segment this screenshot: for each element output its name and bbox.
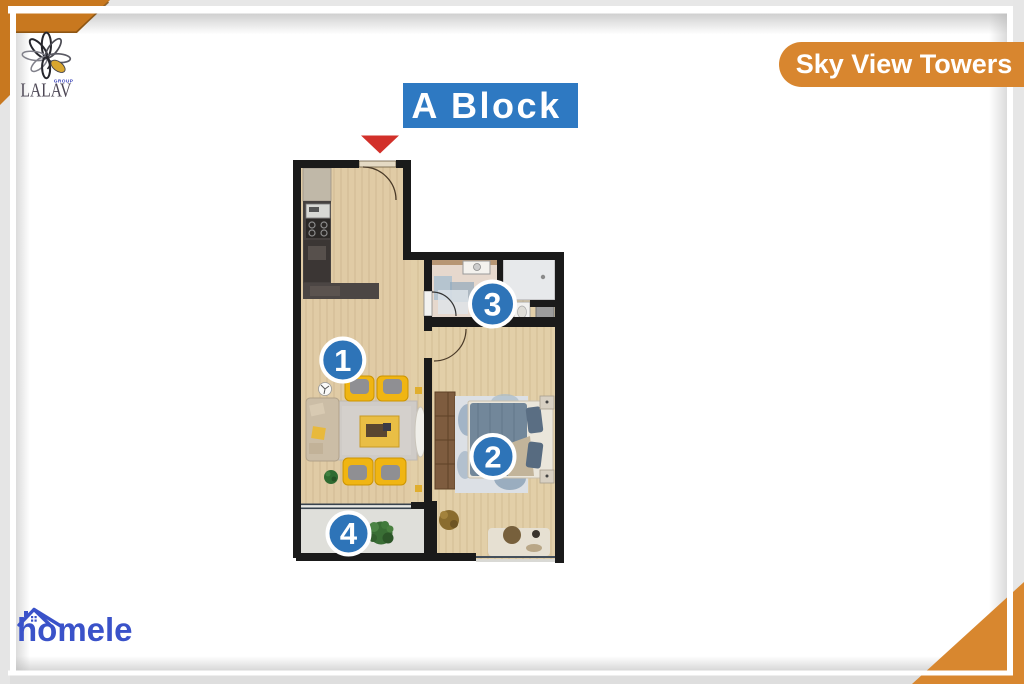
svg-text:homele: homele [17,611,133,648]
svg-text:3: 3 [484,287,502,323]
svg-text:1: 1 [334,343,351,378]
svg-text:4: 4 [340,516,358,551]
svg-text:LALAV: LALAV [21,78,72,101]
svg-text:2: 2 [484,440,501,475]
